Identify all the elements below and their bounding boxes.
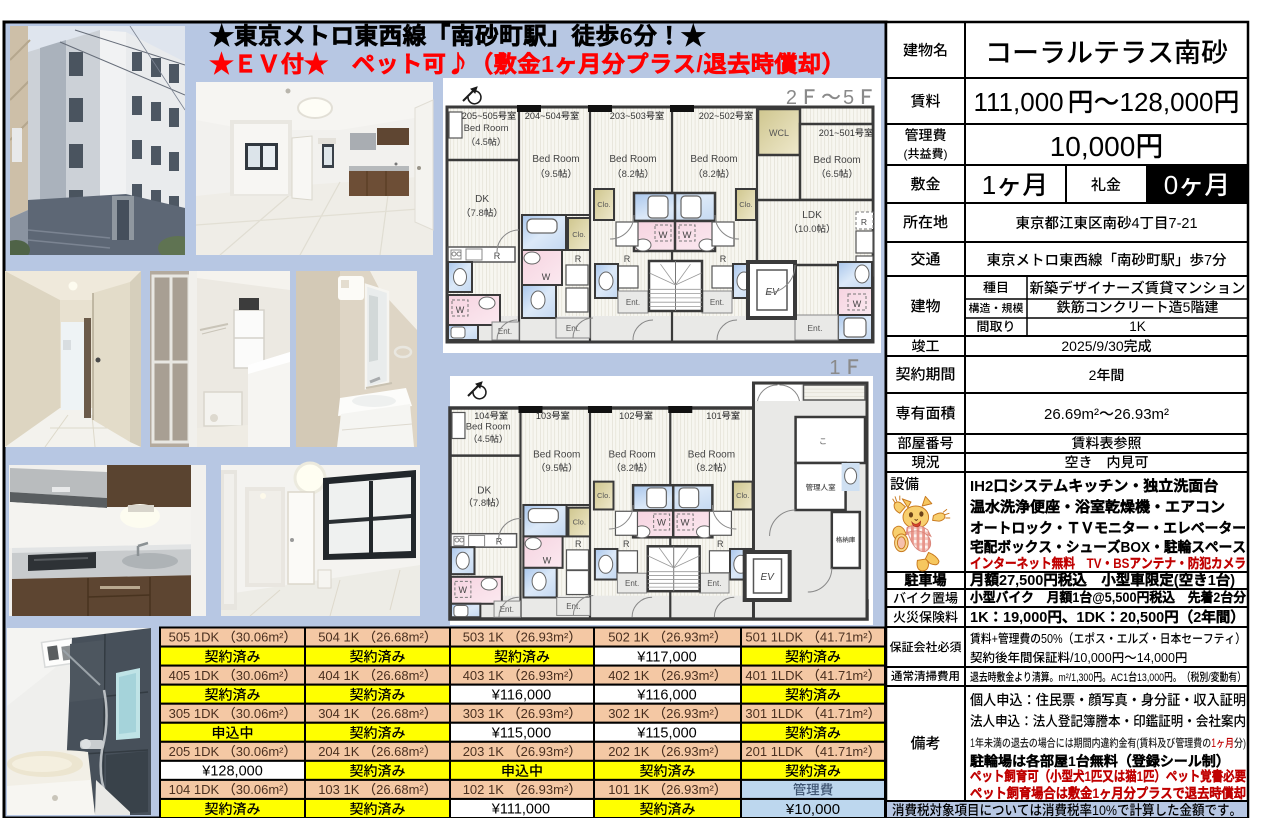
svg-text:26.93m²: 26.93m² (1114, 406, 1169, 423)
svg-text:1: 1 (541, 51, 554, 77)
svg-text:Clo.: Clo. (597, 491, 610, 500)
svg-text:111,000: 111,000 (974, 87, 1064, 117)
svg-text:Ent.: Ent. (707, 579, 721, 588)
svg-text:202~502: 202~502 (699, 111, 735, 121)
svg-text:103 1K: 103 1K (318, 782, 360, 797)
svg-text:(: ( (904, 147, 908, 161)
svg-text:1: 1 (982, 170, 996, 200)
svg-text:30.06m²: 30.06m² (236, 744, 284, 759)
svg-text:Bed Room: Bed Room (466, 422, 511, 433)
svg-text:Bed Room: Bed Room (609, 449, 656, 460)
svg-text:104 1DK: 104 1DK (169, 782, 220, 797)
svg-text:/: / (1208, 672, 1211, 684)
svg-text:W: W (456, 305, 465, 315)
svg-text:6: 6 (620, 23, 634, 49)
svg-text:Ent.: Ent. (626, 298, 640, 307)
svg-text:1: 1 (829, 357, 842, 379)
svg-text:/10,000: /10,000 (1070, 651, 1112, 665)
svg-text:AC1: AC1 (1111, 672, 1128, 684)
svg-text:2: 2 (1089, 367, 1097, 383)
svg-text:301 1LDK: 301 1LDK (745, 706, 803, 721)
svg-text:502 1K: 502 1K (608, 630, 650, 645)
svg-text:Ent.: Ent. (710, 298, 724, 307)
svg-text:204~504: 204~504 (525, 111, 561, 121)
svg-text:¥117,000: ¥117,000 (636, 649, 696, 665)
svg-text:201 1LDK: 201 1LDK (745, 744, 803, 759)
svg-text:503 1K: 503 1K (463, 630, 505, 645)
svg-text:202 1K: 202 1K (608, 744, 650, 759)
svg-text:205 1DK: 205 1DK (169, 744, 220, 759)
svg-text:1K: 1K (970, 610, 989, 626)
svg-text:8.2: 8.2 (621, 463, 634, 474)
svg-text:1: 1 (1092, 785, 1099, 801)
svg-text:0: 0 (1164, 170, 1178, 200)
svg-text:Ent.: Ent. (807, 323, 822, 333)
svg-text:Clo.: Clo. (597, 200, 610, 209)
svg-text:¥116,000: ¥116,000 (491, 687, 551, 703)
svg-text:BS: BS (1113, 556, 1129, 571)
svg-text:9.5: 9.5 (545, 169, 558, 180)
svg-text:DK: DK (477, 485, 491, 496)
svg-text:501 1LDK: 501 1LDK (745, 630, 803, 645)
svg-text:LDK: LDK (802, 210, 822, 221)
svg-text:203 1K: 203 1K (463, 744, 505, 759)
svg-text:TV: TV (1087, 556, 1102, 571)
svg-text:30.06m²: 30.06m² (236, 630, 284, 645)
svg-text:WCL: WCL (769, 128, 789, 138)
svg-text:W: W (543, 555, 552, 565)
svg-text:41.71m²: 41.71m² (820, 668, 868, 683)
svg-text:26.93m²: 26.93m² (666, 706, 714, 721)
svg-text:101: 101 (706, 411, 721, 421)
svg-text:50%: 50% (1041, 632, 1063, 646)
svg-text:¥116,000: ¥116,000 (636, 687, 696, 703)
svg-text:¥115,000: ¥115,000 (636, 726, 696, 742)
svg-text:26.93m²: 26.93m² (666, 782, 714, 797)
svg-text:8.2: 8.2 (700, 463, 713, 474)
svg-text:41.71m²: 41.71m² (820, 744, 868, 759)
svg-text:1: 1 (970, 738, 975, 750)
svg-text:304 1K: 304 1K (318, 706, 360, 721)
svg-text:Bed Room: Bed Room (813, 155, 860, 166)
svg-text:Clo.: Clo. (736, 491, 749, 500)
svg-text:201~501: 201~501 (819, 128, 855, 138)
svg-text:26.93m²: 26.93m² (666, 668, 714, 683)
svg-text:m²/1,300: m²/1,300 (1058, 672, 1093, 684)
svg-text:Clo.: Clo. (573, 518, 586, 527)
svg-text:303 1K: 303 1K (463, 706, 505, 721)
svg-text:W: W (681, 518, 690, 529)
svg-text:8.2: 8.2 (703, 169, 716, 180)
svg-text:26.69m²: 26.69m² (1044, 406, 1099, 423)
svg-text:): ) (944, 147, 948, 161)
svg-text:(: ( (1174, 573, 1179, 589)
svg-text:7: 7 (1204, 253, 1212, 269)
svg-text:30.06m²: 30.06m² (236, 782, 284, 797)
svg-text:R: R (861, 217, 867, 227)
svg-text:Ent.: Ent. (498, 327, 512, 336)
svg-text:26.93m²: 26.93m² (666, 630, 714, 645)
svg-text:26.93m²: 26.93m² (521, 782, 569, 797)
svg-text:4: 4 (1132, 216, 1140, 232)
svg-text:1: 1 (1072, 590, 1079, 605)
svg-text:7-21: 7-21 (1169, 216, 1198, 232)
svg-text:Bed Room: Bed Room (688, 449, 735, 460)
svg-text:1DK: 1DK (1076, 610, 1106, 626)
svg-text:9.5: 9.5 (545, 463, 558, 474)
svg-text:Bed Room: Bed Room (532, 154, 579, 165)
svg-text:R: R (720, 254, 727, 264)
svg-text:1K: 1K (1129, 319, 1146, 334)
svg-text:203~503: 203~503 (610, 111, 646, 121)
svg-text:W: W (459, 585, 468, 595)
svg-text:2: 2 (1213, 590, 1220, 605)
svg-text:1: 1 (1085, 769, 1091, 784)
svg-text:302 1K: 302 1K (608, 706, 650, 721)
svg-text:26.68m²: 26.68m² (376, 744, 424, 759)
svg-text:41.71m²: 41.71m² (820, 706, 868, 721)
svg-text:/: / (696, 51, 703, 77)
svg-text:Clo.: Clo. (739, 200, 752, 209)
svg-text:10,000: 10,000 (1050, 131, 1136, 162)
svg-text:10.0: 10.0 (798, 224, 817, 235)
svg-text:505 1DK: 505 1DK (169, 630, 220, 645)
svg-text:1: 1 (1137, 769, 1143, 784)
svg-text:R: R (496, 537, 503, 547)
svg-text:101 1K: 101 1K (608, 782, 650, 797)
svg-text:14,000: 14,000 (1137, 651, 1175, 665)
svg-text:@5,500: @5,500 (1092, 590, 1136, 605)
svg-text:26.93m²: 26.93m² (666, 744, 714, 759)
svg-text:41.71m²: 41.71m² (820, 630, 868, 645)
svg-text:1: 1 (1068, 753, 1076, 769)
svg-text:1: 1 (1211, 738, 1216, 750)
svg-text:403 1K: 403 1K (463, 668, 505, 683)
svg-text:26.68m²: 26.68m² (376, 782, 424, 797)
svg-text:Ent.: Ent. (566, 602, 580, 611)
svg-text:Bed Room: Bed Room (533, 449, 580, 460)
svg-text:W: W (657, 518, 666, 529)
svg-text:13,000: 13,000 (1137, 672, 1164, 684)
svg-text:R: R (575, 254, 582, 264)
svg-text:305 1DK: 305 1DK (169, 706, 220, 721)
svg-text:404 1K: 404 1K (318, 668, 360, 683)
svg-text:Bed Room: Bed Room (464, 123, 509, 134)
svg-text:204 1K: 204 1K (318, 744, 360, 759)
svg-text:R: R (717, 539, 724, 549)
svg-text:10%: 10% (1092, 802, 1117, 818)
svg-text:7.8: 7.8 (473, 498, 486, 509)
svg-text:26.93m²: 26.93m² (521, 744, 569, 759)
svg-text:W: W (683, 230, 692, 241)
svg-text:26.68m²: 26.68m² (376, 706, 424, 721)
svg-text:Clo.: Clo. (572, 230, 585, 239)
svg-text:26.93m²: 26.93m² (521, 706, 569, 721)
svg-text:27,500: 27,500 (999, 573, 1043, 589)
svg-text:5: 5 (1183, 299, 1191, 315)
svg-text:504 1K: 504 1K (318, 630, 360, 645)
svg-text:BOX: BOX (1121, 539, 1151, 555)
svg-text:Bed Room: Bed Room (609, 154, 656, 165)
svg-text:Ent.: Ent. (625, 579, 639, 588)
svg-text:): ) (1243, 738, 1246, 750)
svg-text:+: + (992, 632, 998, 646)
svg-text:19,000: 19,000 (1003, 610, 1047, 626)
svg-text:7.8: 7.8 (471, 208, 484, 219)
svg-text:): ) (1230, 573, 1235, 589)
svg-text:W: W (542, 272, 551, 282)
svg-text:128,000: 128,000 (1120, 87, 1214, 117)
svg-text:¥10,000: ¥10,000 (785, 801, 840, 818)
svg-text:30.06m²: 30.06m² (236, 706, 284, 721)
svg-text:DK: DK (475, 194, 489, 205)
svg-text:401 1LDK: 401 1LDK (745, 668, 803, 683)
svg-text:(: ( (1136, 738, 1139, 750)
svg-text:IH2: IH2 (970, 478, 993, 495)
svg-text:EV: EV (761, 572, 776, 583)
svg-text:4.5: 4.5 (475, 137, 488, 147)
svg-text:¥115,000: ¥115,000 (491, 726, 551, 742)
svg-text:2025/9/30: 2025/9/30 (1061, 338, 1123, 354)
svg-text:Bed Room: Bed Room (690, 154, 737, 165)
svg-text:402 1K: 402 1K (608, 668, 650, 683)
svg-text:4.5: 4.5 (477, 434, 490, 444)
svg-text:102: 102 (619, 411, 634, 421)
svg-text:¥128,000: ¥128,000 (201, 764, 262, 780)
svg-text:405 1DK: 405 1DK (169, 668, 220, 683)
svg-text:30.06m²: 30.06m² (236, 668, 284, 683)
svg-text:R: R (624, 254, 631, 264)
svg-text:26.93m²: 26.93m² (521, 630, 569, 645)
svg-text:6.5: 6.5 (826, 169, 839, 180)
svg-text:26.68m²: 26.68m² (376, 630, 424, 645)
svg-text:1: 1 (1208, 573, 1216, 589)
svg-text:R: R (623, 539, 630, 549)
svg-text:102 1K: 102 1K (463, 782, 505, 797)
svg-text:¥111,000: ¥111,000 (491, 802, 550, 818)
svg-text:103: 103 (536, 411, 551, 421)
svg-text:R: R (575, 539, 582, 549)
svg-text:205~505: 205~505 (462, 111, 498, 121)
svg-text:26.93m²: 26.93m² (521, 668, 569, 683)
svg-text:W: W (659, 230, 668, 241)
svg-text:26.68m²: 26.68m² (376, 668, 424, 683)
svg-text:8.2: 8.2 (622, 169, 635, 180)
svg-text:R: R (494, 251, 501, 261)
svg-text:W: W (853, 299, 862, 309)
svg-text:104: 104 (474, 411, 489, 421)
svg-text:2: 2 (1193, 610, 1201, 626)
svg-text:20,500: 20,500 (1120, 610, 1164, 626)
